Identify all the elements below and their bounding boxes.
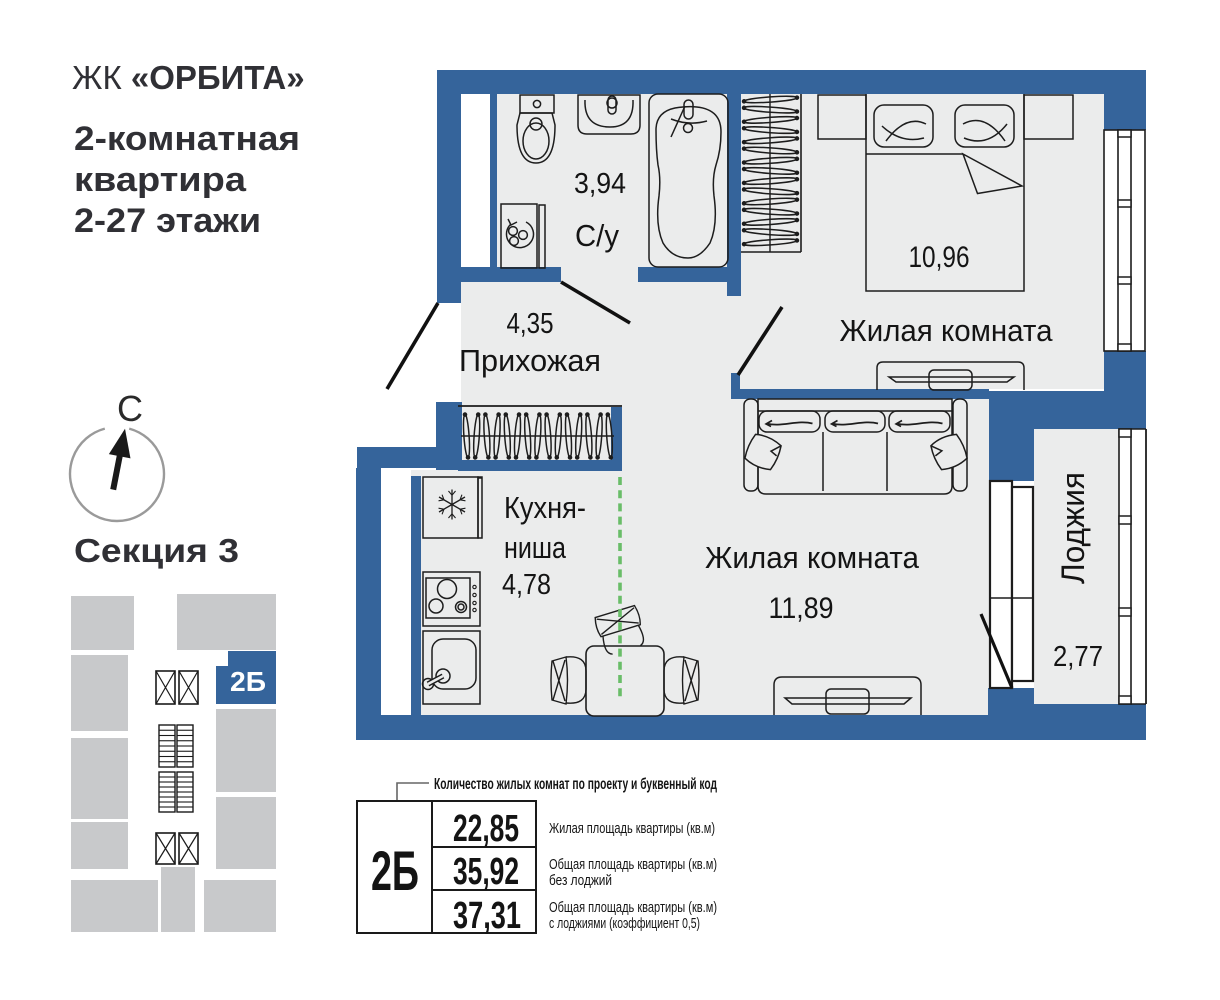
svg-text:Общая площадь квартиры (кв.м): Общая площадь квартиры (кв.м) <box>549 856 717 873</box>
svg-text:4,35: 4,35 <box>507 308 554 340</box>
svg-text:Общая площадь квартиры (кв.м): Общая площадь квартиры (кв.м) <box>549 899 717 916</box>
svg-text:11,89: 11,89 <box>769 592 834 625</box>
svg-text:2Б: 2Б <box>230 666 266 697</box>
svg-text:10,96: 10,96 <box>909 241 970 274</box>
svg-text:3,94: 3,94 <box>574 168 626 200</box>
svg-text:Прихожая: Прихожая <box>459 343 601 378</box>
svg-text:Количество жилых комнат по про: Количество жилых комнат по проекту и бук… <box>434 776 717 793</box>
svg-text:С: С <box>117 388 143 429</box>
svg-text:Жилая комната: Жилая комната <box>705 540 920 575</box>
svg-text:Жилая площадь квартиры (кв.м): Жилая площадь квартиры (кв.м) <box>549 820 715 837</box>
svg-text:Лоджия: Лоджия <box>1055 472 1091 584</box>
svg-text:2,77: 2,77 <box>1053 641 1103 673</box>
svg-text:2Б: 2Б <box>371 839 419 902</box>
svg-text:ЖК «ОРБИТА»: ЖК «ОРБИТА» <box>72 59 305 96</box>
svg-text:Кухня-: Кухня- <box>504 490 586 525</box>
svg-text:37,31: 37,31 <box>453 895 521 937</box>
svg-text:Жилая комната: Жилая комната <box>840 313 1054 348</box>
svg-text:с лоджиями (коэффициент 0,5): с лоджиями (коэффициент 0,5) <box>549 915 700 932</box>
svg-text:С/у: С/у <box>575 218 619 253</box>
svg-text:22,85: 22,85 <box>453 808 519 850</box>
svg-text:35,92: 35,92 <box>453 851 519 893</box>
svg-text:квартира: квартира <box>74 161 247 199</box>
svg-text:ниша: ниша <box>504 530 567 565</box>
svg-text:4,78: 4,78 <box>502 569 551 601</box>
svg-text:Секция 3: Секция 3 <box>74 532 239 569</box>
svg-text:без лоджий: без лоджий <box>549 872 612 889</box>
svg-text:2-27 этажи: 2-27 этажи <box>74 202 261 240</box>
svg-text:2-комнатная: 2-комнатная <box>74 120 300 158</box>
